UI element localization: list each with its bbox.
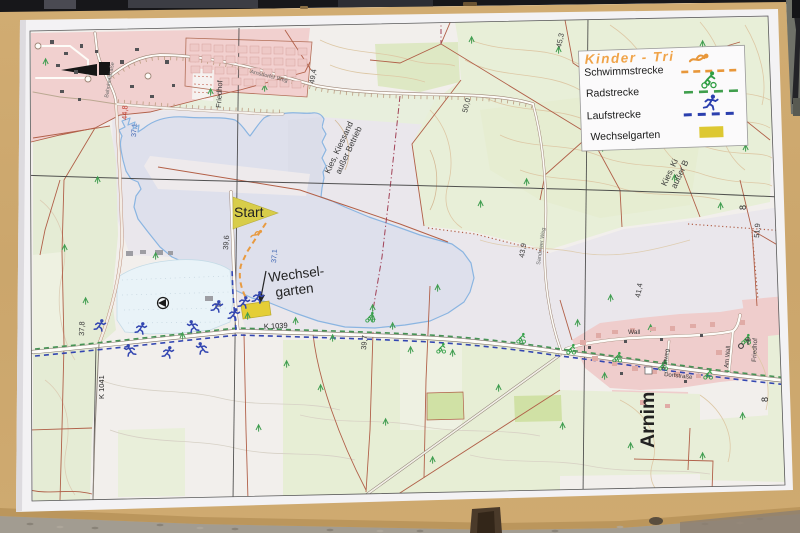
svg-text:Wall: Wall <box>628 329 641 336</box>
svg-text:K 1041: K 1041 <box>97 375 106 399</box>
svg-text:39,7: 39,7 <box>359 335 369 350</box>
svg-text:Radstrecke: Radstrecke <box>586 86 640 100</box>
svg-text:44,8: 44,8 <box>120 105 130 120</box>
svg-text:Wechselgarten: Wechselgarten <box>590 129 660 143</box>
svg-text:Start: Start <box>234 204 264 220</box>
svg-text:37,1: 37,1 <box>131 123 138 137</box>
svg-text:8: 8 <box>760 397 770 402</box>
svg-text:Laufstrecke: Laufstrecke <box>587 108 642 122</box>
svg-text:Friedhof: Friedhof <box>214 79 224 108</box>
svg-text:37,1: 37,1 <box>271 249 279 263</box>
svg-text:Friedhof: Friedhof <box>751 338 759 362</box>
svg-text:8: 8 <box>738 205 748 210</box>
svg-text:K 1039: K 1039 <box>264 321 288 331</box>
svg-text:51,9: 51,9 <box>752 223 762 238</box>
svg-text:Arnim: Arnim <box>637 392 659 448</box>
svg-text:39,6: 39,6 <box>221 235 231 250</box>
svg-text:37,8: 37,8 <box>77 321 87 336</box>
